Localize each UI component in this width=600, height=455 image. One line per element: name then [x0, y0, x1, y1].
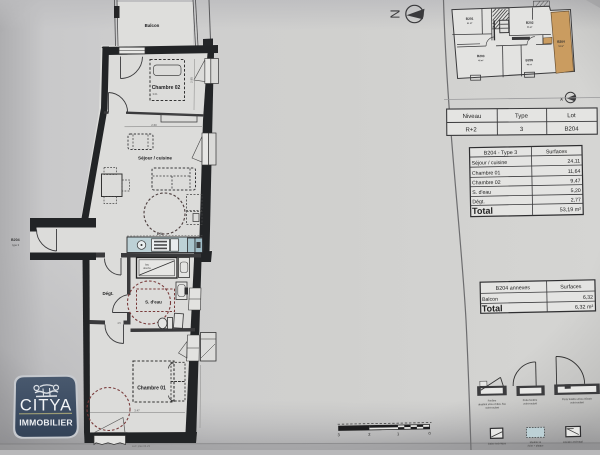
svg-text:S. d'eau: S. d'eau: [145, 300, 162, 305]
svg-text:B204 - Type 3: B204 - Type 3: [484, 150, 518, 157]
svg-text:R+2: R+2: [465, 127, 477, 133]
svg-text:Total: Total: [482, 303, 503, 313]
svg-text:6,32: 6,32: [583, 295, 593, 301]
svg-text:douche: douche: [143, 267, 152, 270]
svg-text:9,47: 9,47: [570, 178, 580, 184]
svg-text:2,77: 2,77: [571, 197, 581, 203]
svg-text:Surfaces: Surfaces: [560, 284, 582, 290]
svg-text:volet roulant: volet roulant: [570, 401, 584, 404]
svg-text:3.47: 3.47: [134, 409, 140, 413]
svg-text:B202: B202: [526, 21, 534, 25]
svg-text:24,11: 24,11: [567, 159, 580, 165]
svg-text:Chambre 02: Chambre 02: [152, 85, 181, 91]
svg-text:11,64: 11,64: [568, 169, 581, 175]
svg-text:S. d'eau: S. d'eau: [472, 190, 491, 196]
svg-text:volet roulant: volet roulant: [523, 402, 537, 405]
svg-text:Dégt.: Dégt.: [472, 199, 485, 205]
svg-text:N: N: [388, 9, 403, 18]
svg-text:Chambre 01: Chambre 01: [472, 170, 501, 177]
svg-text:Séjour / cuisine: Séjour / cuisine: [138, 156, 172, 161]
svg-text:type 3: type 3: [12, 243, 20, 247]
svg-text:volet roulant: volet roulant: [485, 406, 499, 409]
svg-text:Dégt.: Dégt.: [103, 291, 114, 296]
svg-text:Gaine technique: Gaine technique: [488, 442, 507, 445]
svg-text:B204: B204: [565, 127, 580, 133]
svg-text:Chambre 01: Chambre 01: [137, 385, 166, 391]
svg-text:3.01: 3.01: [152, 92, 158, 96]
svg-text:53,19 m²: 53,19 m²: [560, 207, 582, 213]
svg-text:B205: B205: [525, 58, 533, 62]
svg-text:5,20: 5,20: [571, 188, 581, 194]
svg-text:Linéaire aménagé: Linéaire aménagé: [563, 440, 584, 443]
svg-text:Surfaces: Surfaces: [546, 149, 568, 155]
svg-text:Lot: Lot: [567, 113, 576, 119]
svg-text:B204: B204: [557, 40, 565, 44]
svg-text:53 m²: 53 m²: [558, 45, 564, 48]
svg-text:Balcon: Balcon: [145, 23, 160, 28]
svg-text:Total: Total: [472, 206, 493, 216]
svg-text:2.60: 2.60: [151, 123, 157, 127]
svg-text:B201: B201: [466, 17, 474, 21]
svg-text:51 m²: 51 m²: [467, 22, 473, 25]
svg-text:CITYA: CITYA: [20, 397, 72, 415]
svg-text:surf. plan 04.23: surf. plan 04.23: [132, 444, 150, 448]
svg-text:évier + plaque: évier + plaque: [528, 444, 544, 447]
svg-text:B203: B203: [477, 54, 485, 58]
svg-text:B204 annexes: B204 annexes: [496, 285, 531, 292]
svg-text:2.85: 2.85: [190, 77, 194, 83]
svg-text:B204: B204: [11, 238, 20, 242]
svg-text:Type: Type: [515, 114, 529, 120]
svg-text:55 m²: 55 m²: [527, 26, 533, 29]
svg-text:L.V.: L.V.: [157, 232, 163, 236]
svg-text:42 m²: 42 m²: [478, 59, 484, 62]
svg-text:40 m²: 40 m²: [527, 63, 533, 66]
svg-text:Séjour / cuisine: Séjour / cuisine: [472, 160, 508, 167]
svg-text:Chambre 02: Chambre 02: [472, 180, 501, 187]
svg-text:6,32 m²: 6,32 m²: [575, 304, 594, 310]
svg-text:Niveau: Niveau: [463, 114, 482, 120]
svg-text:IMMOBILIER: IMMOBILIER: [19, 418, 73, 428]
svg-text:Balcon: Balcon: [482, 297, 498, 303]
